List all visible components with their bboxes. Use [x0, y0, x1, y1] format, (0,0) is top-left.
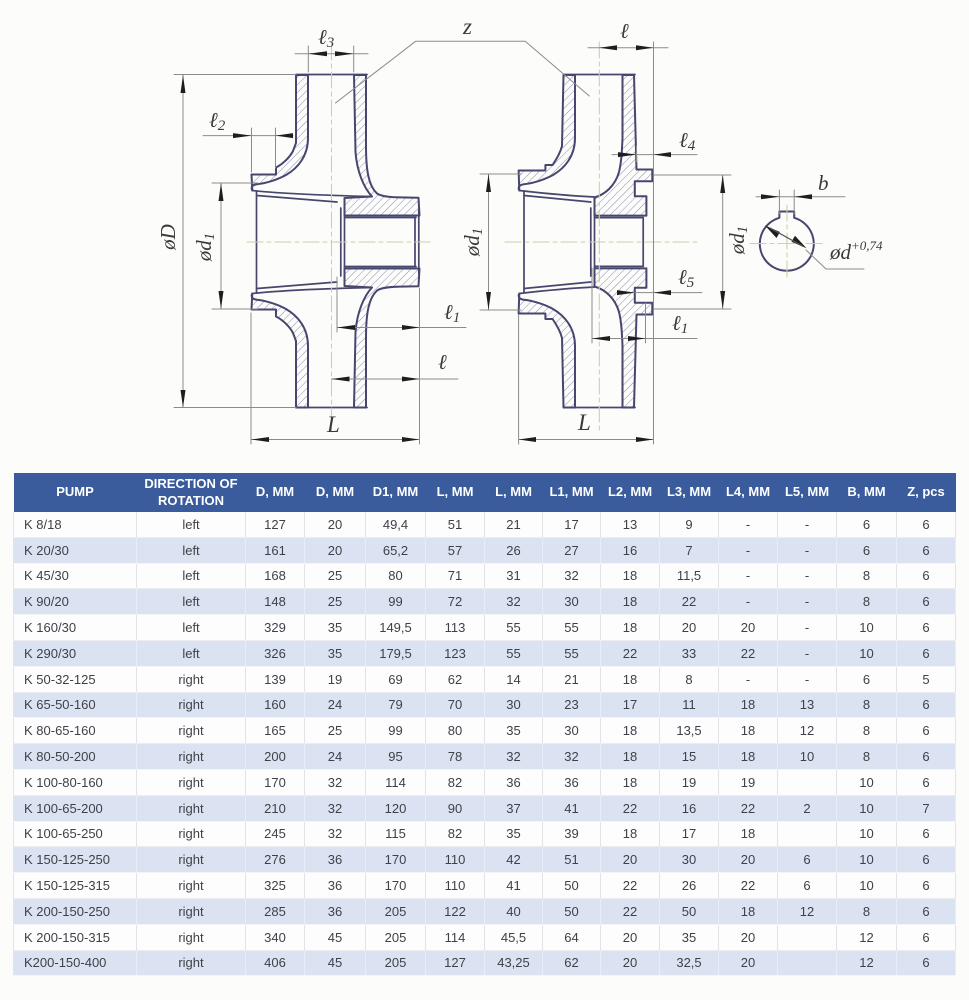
svg-text:ℓ1: ℓ1 [444, 300, 460, 326]
svg-text:L: L [577, 410, 591, 435]
svg-text:ød1: ød1 [460, 228, 486, 258]
svg-text:ℓ5: ℓ5 [678, 265, 695, 291]
svg-text:ød+0,74: ød+0,74 [829, 238, 883, 264]
svg-text:ℓ1: ℓ1 [672, 311, 688, 337]
svg-text:ℓ4: ℓ4 [679, 128, 696, 154]
svg-text:b: b [818, 171, 829, 195]
svg-text:ød1: ød1 [725, 226, 751, 256]
svg-text:ød1: ød1 [192, 233, 218, 263]
svg-text:øD: øD [156, 224, 180, 251]
svg-text:ℓ2: ℓ2 [209, 108, 226, 134]
svg-text:z: z [462, 14, 472, 39]
svg-text:ℓ3: ℓ3 [318, 25, 334, 51]
svg-text:ℓ: ℓ [620, 19, 629, 43]
svg-text:L: L [326, 412, 340, 437]
svg-text:ℓ: ℓ [438, 350, 447, 374]
